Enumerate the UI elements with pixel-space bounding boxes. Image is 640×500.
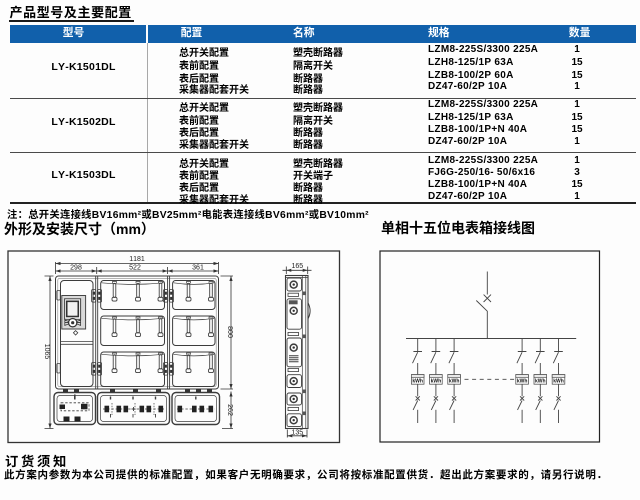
svg-text:1065: 1065 [43,344,50,360]
svg-text:1181: 1181 [129,256,145,263]
svg-text:kWh: kWh [431,378,442,384]
svg-text:kWh: kWh [535,378,546,384]
svg-text:165: 165 [291,263,303,270]
svg-text:kWh: kWh [449,378,460,384]
svg-text:262: 262 [226,404,233,416]
svg-text:135: 135 [291,429,303,436]
svg-text:361: 361 [192,265,204,272]
svg-text:kWh: kWh [553,378,564,384]
svg-text:800: 800 [226,326,233,338]
svg-text:kWh: kWh [517,378,528,384]
svg-text:kWh: kWh [412,378,423,384]
svg-text:522: 522 [129,265,141,272]
svg-text:298: 298 [70,265,82,272]
